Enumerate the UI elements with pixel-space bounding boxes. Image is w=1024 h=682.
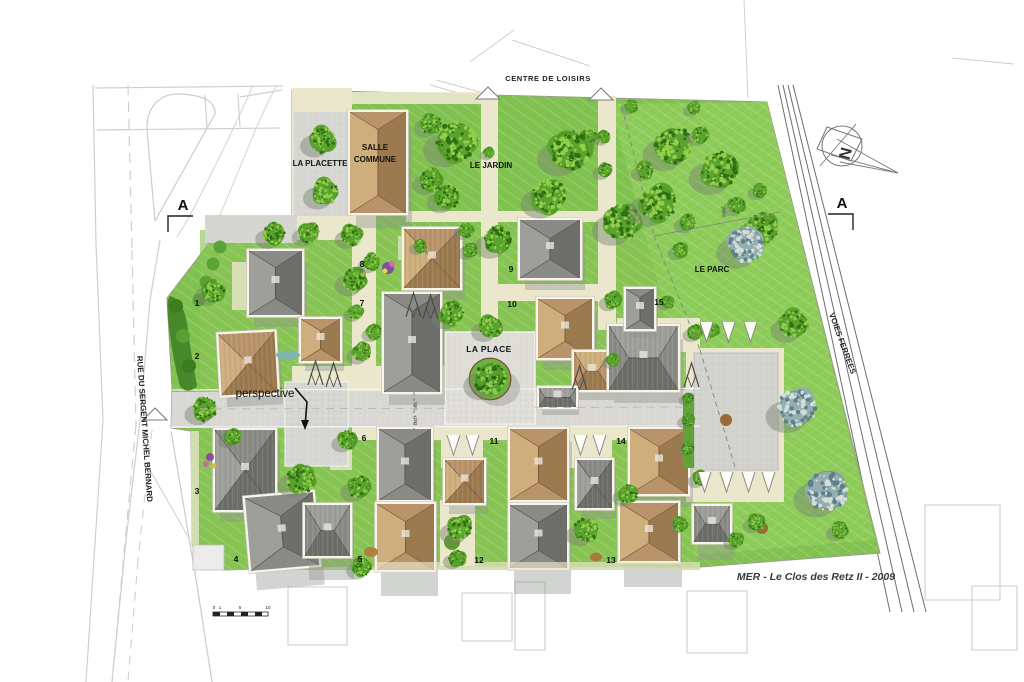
svg-text:LA PLACE: LA PLACE	[466, 344, 511, 354]
svg-text:10: 10	[265, 605, 271, 610]
svg-text:3: 3	[195, 486, 200, 496]
svg-text:2: 2	[195, 351, 200, 361]
svg-text:LE PARC: LE PARC	[695, 265, 730, 274]
svg-text:9: 9	[509, 264, 514, 274]
svg-text:5: 5	[358, 554, 363, 564]
svg-text:14: 14	[616, 436, 626, 446]
svg-text:SALLE: SALLE	[362, 143, 389, 152]
svg-text:6: 6	[362, 433, 367, 443]
svg-text:A: A	[837, 195, 848, 212]
svg-text:12: 12	[474, 555, 484, 565]
svg-text:CENTRE DE LOISIRS: CENTRE DE LOISIRS	[505, 74, 591, 83]
svg-text:15: 15	[654, 297, 664, 307]
svg-text:MER - Le Clos des Retz II - 20: MER - Le Clos des Retz II - 2009	[737, 571, 895, 583]
svg-text:perspective: perspective	[236, 388, 295, 400]
svg-text:10: 10	[507, 299, 517, 309]
svg-text:13: 13	[606, 555, 616, 565]
svg-text:LA PLACETTE: LA PLACETTE	[293, 159, 348, 168]
svg-text:2800: 2800	[720, 206, 727, 218]
svg-text:4: 4	[234, 554, 239, 564]
svg-text:COMMUNE: COMMUNE	[354, 155, 397, 164]
svg-text:A: A	[178, 197, 189, 214]
svg-text:LE JARDIN: LE JARDIN	[470, 161, 512, 170]
svg-text:1: 1	[195, 298, 200, 308]
svg-text:8: 8	[360, 259, 365, 269]
svg-text:7: 7	[360, 298, 365, 308]
svg-text:11: 11	[490, 436, 499, 446]
